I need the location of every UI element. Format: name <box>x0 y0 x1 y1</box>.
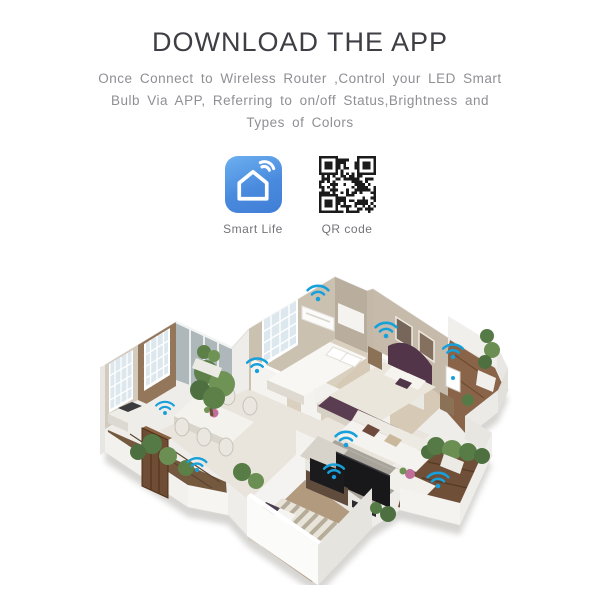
smart-life-house-wifi-icon <box>225 156 282 213</box>
description-line: Bulb Via APP, Referring to on/off Status… <box>0 90 600 112</box>
description-line: Once Connect to Wireless Router ,Control… <box>0 68 600 90</box>
floor-plan-illustration <box>60 255 545 585</box>
app-download-row: Smart Life QR code <box>0 156 600 236</box>
qr-code-block: QR code <box>309 156 385 236</box>
qr-code-label: QR code <box>322 222 373 236</box>
page: DOWNLOAD THE APP Once Connect to Wireles… <box>0 0 600 600</box>
page-title: DOWNLOAD THE APP <box>0 27 600 58</box>
smart-life-block: Smart Life <box>215 156 291 236</box>
description-line: Types of Colors <box>0 112 600 134</box>
description: Once Connect to Wireless Router ,Control… <box>0 68 600 134</box>
smart-life-app-icon <box>225 156 282 213</box>
qr-code-icon <box>319 156 376 213</box>
smart-life-label: Smart Life <box>223 222 283 236</box>
qr-code-image <box>319 156 376 213</box>
